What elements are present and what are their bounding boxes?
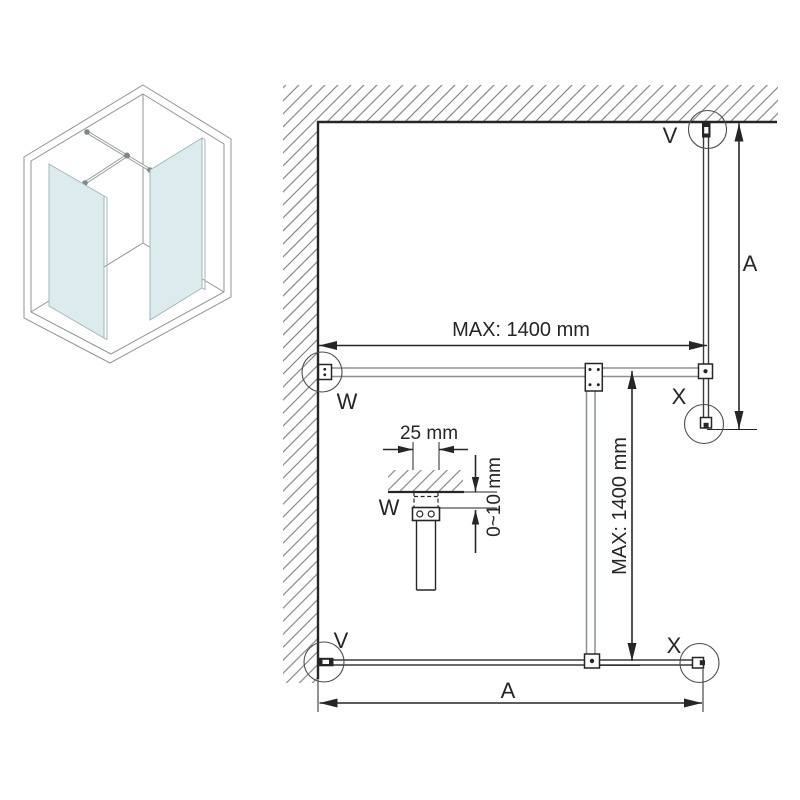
- support-bar-horizontal: [331, 368, 698, 377]
- max-width-label: MAX: 1400 mm: [452, 319, 590, 341]
- dimension-max-depth: MAX: 1400 mm: [609, 371, 637, 661]
- bracket-screw-left: [417, 511, 423, 517]
- dimension-max-width: MAX: 1400 mm: [319, 319, 707, 350]
- dimension-a-right: A: [735, 124, 758, 430]
- plan-view: MAX: 1400 mm MAX: 1400 mm A A: [283, 85, 778, 712]
- iso-glass-panels: [49, 138, 205, 340]
- isometric-view: [24, 85, 231, 363]
- installation-diagram: MAX: 1400 mm MAX: 1400 mm A A: [0, 0, 800, 800]
- arrowhead-down: [472, 477, 479, 492]
- dimension-a-bottom: A: [320, 678, 703, 708]
- max-depth-label: MAX: 1400 mm: [609, 437, 631, 575]
- arrowhead-down: [628, 643, 637, 661]
- arrowhead-left: [439, 446, 454, 453]
- iso-bar-perpendicular-core: [85, 156, 127, 184]
- arrowhead-down: [735, 411, 744, 429]
- bar-to-panel-connector-right: [699, 364, 713, 379]
- a-right-label: A: [743, 251, 758, 276]
- support-bar-vertical: [587, 391, 596, 654]
- arrowhead-right: [684, 699, 702, 708]
- label-w: W: [337, 389, 358, 414]
- iso-support-bars: [82, 129, 153, 186]
- label-x-bottom: X: [667, 633, 682, 658]
- bracket-screw-right: [428, 511, 434, 517]
- bar-to-panel-connector-bottom: [585, 654, 600, 668]
- glass-panel-bottom: [318, 658, 705, 669]
- detail-wall-bracket: [413, 492, 440, 521]
- wall-bracket-w: [319, 365, 332, 380]
- detail-dimension-gap: 0~10 mm: [472, 455, 505, 553]
- gap-range-label: 0~10 mm: [484, 457, 505, 537]
- arrowhead-left: [319, 341, 337, 350]
- iso-bar-horizontal-core: [87, 132, 150, 170]
- arrowhead-left: [320, 699, 338, 708]
- label-v-bottom: V: [334, 628, 349, 653]
- detail-dimension-25mm: 25 mm: [383, 423, 468, 470]
- detail-wall-hatching: [388, 470, 463, 492]
- label-x-right: X: [672, 384, 687, 409]
- iso-t-connector: [124, 153, 130, 159]
- arrowhead-up: [735, 124, 744, 142]
- arrowhead-up: [472, 510, 479, 525]
- detail-label-w: W: [379, 495, 400, 520]
- arrowhead-right: [398, 446, 413, 453]
- arrowhead-right: [689, 341, 707, 350]
- detail-view-w: 25 mm 0~10 mm W: [379, 423, 505, 590]
- diagram-page: MAX: 1400 mm MAX: 1400 mm A A: [0, 0, 800, 800]
- bar-t-connector: [585, 364, 602, 392]
- a-bottom-label: A: [501, 678, 516, 703]
- iso-wall-connector: [84, 129, 90, 135]
- label-v-top: V: [663, 123, 678, 148]
- iso-glass-panel-left: [49, 164, 104, 338]
- glass-panel-right: [701, 122, 712, 428]
- bracket-width-label: 25 mm: [400, 423, 458, 444]
- detail-support-bar: [417, 521, 436, 591]
- arrowhead-up: [628, 371, 637, 389]
- iso-glass-panel-right: [150, 138, 202, 320]
